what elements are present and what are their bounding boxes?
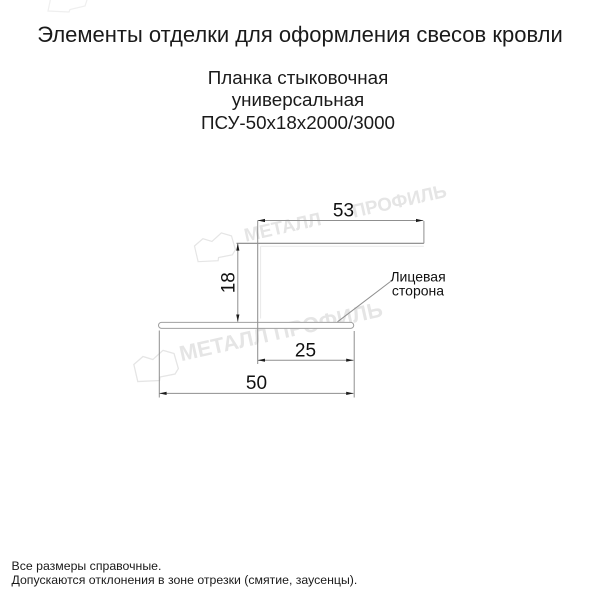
svg-text:50: 50 [246, 373, 267, 394]
svg-text:МЕТАЛЛ ПРОФИЛЬ: МЕТАЛЛ ПРОФИЛЬ [177, 297, 385, 367]
svg-text:ПРОФИЛЬ: ПРОФИЛЬ [350, 180, 448, 221]
svg-text:18: 18 [219, 272, 240, 293]
svg-text:25: 25 [295, 341, 316, 362]
svg-text:53: 53 [333, 201, 354, 222]
svg-text:сторона: сторона [392, 282, 444, 298]
svg-text:МЕТАЛЛ: МЕТАЛЛ [242, 208, 323, 246]
